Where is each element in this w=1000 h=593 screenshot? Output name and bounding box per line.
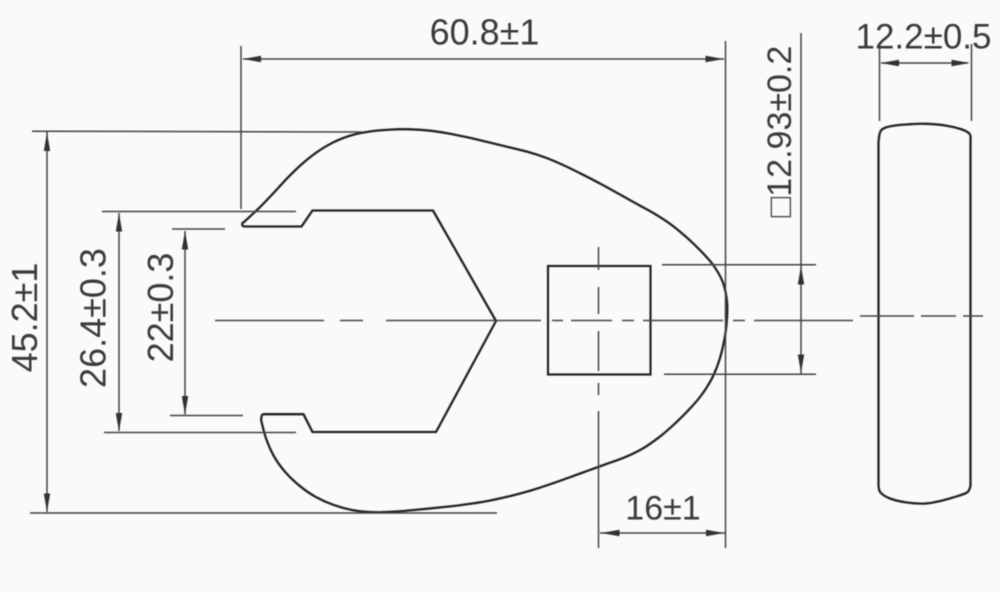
svg-text:22±0.3: 22±0.3 bbox=[140, 253, 181, 363]
svg-text:16±1: 16±1 bbox=[625, 490, 700, 528]
svg-text:□12.93±0.2: □12.93±0.2 bbox=[761, 46, 799, 218]
svg-text:45.2±1: 45.2±1 bbox=[4, 263, 45, 373]
svg-text:60.8±1: 60.8±1 bbox=[430, 12, 540, 53]
svg-text:26.4±0.3: 26.4±0.3 bbox=[73, 248, 114, 388]
svg-text:12.2±0.5: 12.2±0.5 bbox=[856, 18, 992, 57]
